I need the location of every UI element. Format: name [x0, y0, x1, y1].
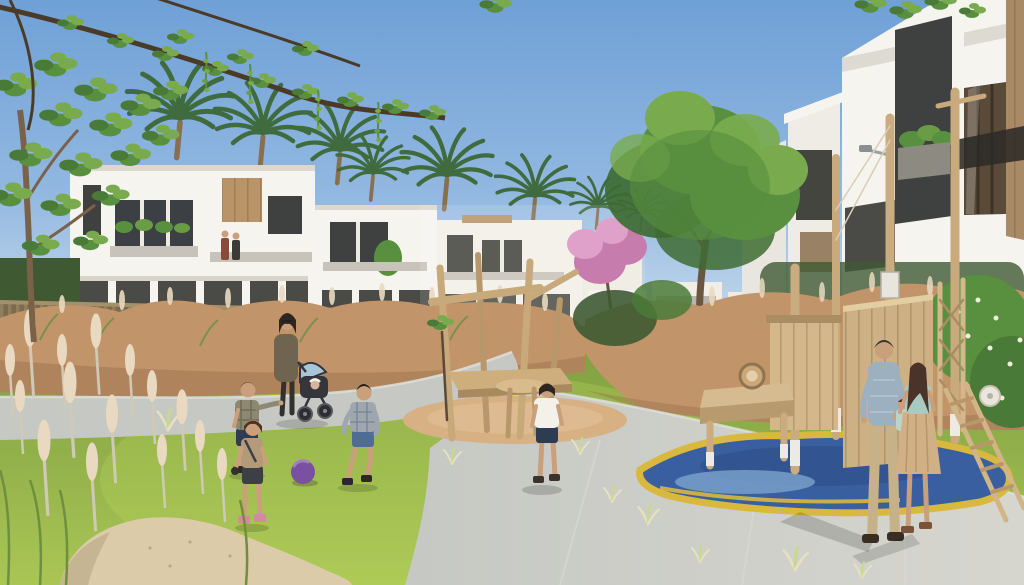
- lawn: [0, 326, 1024, 585]
- distant-houses: [588, 282, 776, 338]
- garden-fence: [0, 258, 432, 352]
- small-child: [896, 399, 910, 432]
- palm-trees: [127, 63, 666, 231]
- main-path: [405, 386, 1024, 585]
- girl-standing: [852, 363, 941, 565]
- stroller: [298, 362, 332, 421]
- toddler: [231, 420, 269, 532]
- left-townhouses: [70, 165, 645, 341]
- woman-with-stroller: [274, 313, 328, 429]
- boy-white-tshirt: [522, 383, 562, 496]
- walk-path: [0, 352, 519, 440]
- white-pampas-foreground: [0, 308, 247, 585]
- scene-canvas: [0, 0, 1024, 585]
- center-tree: [605, 91, 808, 332]
- foreground-tree: [0, 52, 188, 342]
- community-render-image: [0, 0, 1024, 585]
- street-lamp: [859, 145, 889, 300]
- foreground-rock: [60, 517, 352, 585]
- balcony-people: [221, 231, 240, 261]
- boy-plaid-right: [338, 384, 378, 492]
- playground-ladder: [946, 384, 1024, 520]
- boy-plaid-left: [229, 382, 284, 480]
- sky: [0, 0, 1024, 352]
- pampas-bed-right: [573, 272, 1024, 430]
- rubber-safety-surface: [640, 434, 1010, 513]
- playground-fort: [700, 92, 984, 470]
- overhanging-branch: [0, 0, 512, 142]
- sand-pit: [403, 396, 627, 444]
- wood-play-sculpture: [427, 255, 576, 438]
- pink-flowering-tree: [567, 218, 647, 318]
- grass-tufts: [158, 409, 871, 578]
- purple-ball: [291, 460, 318, 487]
- pampas-bed-left: [0, 283, 585, 397]
- top-right-leaves: [854, 0, 986, 19]
- man-standing: [780, 340, 904, 552]
- right-townhouses: [742, 0, 1024, 332]
